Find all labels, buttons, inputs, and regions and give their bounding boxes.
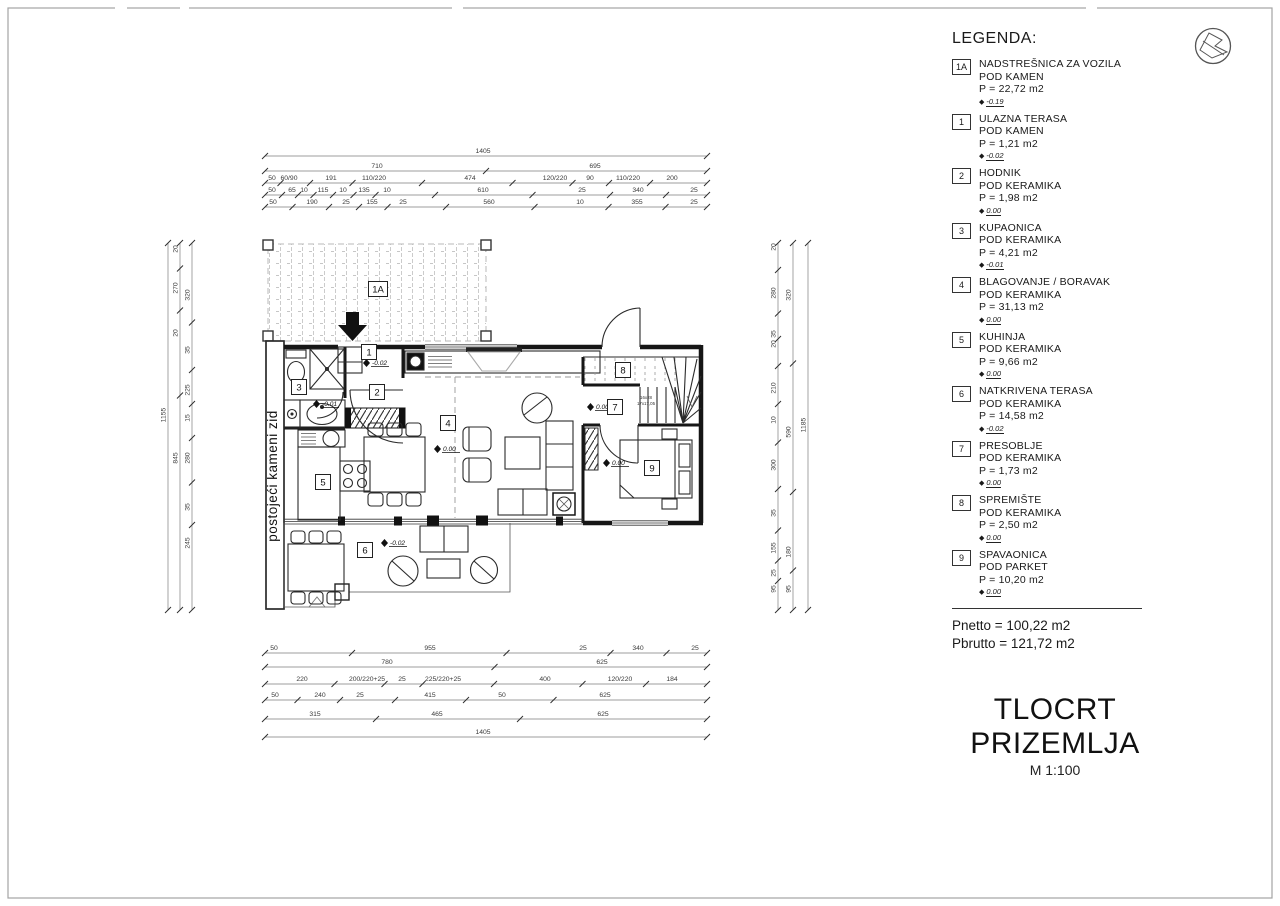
room-tag-label: 7 <box>612 403 617 414</box>
dim-label: 35 <box>185 503 192 511</box>
legend-item: 7 PRESOBLJE POD KERAMIKA P = 1,73 m2 ◆0.… <box>952 440 1190 490</box>
level-marker-icon: ◆ <box>979 535 984 542</box>
legend-item: 2 HODNIK POD KERAMIKA P = 1,98 m2 ◆0.00 <box>952 167 1190 217</box>
room-tag-label: 2 <box>374 388 379 399</box>
dim-label: 955 <box>424 645 436 652</box>
drawing-scale: M 1:100 <box>905 762 1205 778</box>
legend-item: 5 KUHINJA POD KERAMIKA P = 9,66 m2 ◆0.00 <box>952 331 1190 381</box>
dim-label: 25 <box>579 645 587 652</box>
total-netto: Pnetto = 100,22 m2 <box>952 617 1190 635</box>
dim-label: 115 <box>318 187 329 194</box>
legend-item-number: 2 <box>952 168 971 184</box>
dim-label: 120/220 <box>543 175 568 182</box>
room-tag-label: 1A <box>372 285 384 296</box>
legend-item-area: P = 1,21 m2 <box>979 138 1067 151</box>
legend-item-number: 4 <box>952 277 971 293</box>
level-diamond-icon <box>603 459 610 467</box>
dim-label: 10 <box>771 416 778 424</box>
room-tag: 9 <box>645 461 660 476</box>
dim-label: 415 <box>424 692 436 699</box>
level-marker: -0.02 <box>363 359 389 367</box>
legend-divider <box>952 608 1142 609</box>
level-marker: 0.00 <box>603 459 629 467</box>
room-tag-label: 9 <box>649 464 654 475</box>
legend-item-level: 0.00 <box>986 206 1001 216</box>
legend-item-area: P = 1,98 m2 <box>979 192 1061 205</box>
kitchen-island <box>298 430 370 520</box>
level-diamond-icon <box>363 359 370 367</box>
level-marker-icon: ◆ <box>979 480 984 487</box>
dim-label: 50 <box>271 692 279 699</box>
legend-item: 3 KUPAONICA POD KERAMIKA P = 4,21 m2 ◆-0… <box>952 222 1190 272</box>
dim-label: 90 <box>586 175 594 182</box>
dim-label: 355 <box>631 199 643 206</box>
legend-item-level: 0.00 <box>986 478 1001 488</box>
legend-item-level: -0.19 <box>986 97 1003 107</box>
dim-label: 50 <box>270 645 278 652</box>
legend-item-area: P = 10,20 m2 <box>979 574 1048 587</box>
dim-label: 25 <box>398 676 406 683</box>
dim-label: 35 <box>185 346 192 354</box>
dim-label: 95 <box>771 585 778 593</box>
dim-label: 220 <box>296 676 308 683</box>
wall-note: postojeći kameni zid <box>265 410 280 542</box>
kitchen-counter <box>405 348 600 374</box>
level-marker-icon: ◆ <box>979 371 984 378</box>
dim-label: 190 <box>306 199 318 206</box>
dim-label: 184 <box>666 676 678 683</box>
level-marker-icon: ◆ <box>979 262 984 269</box>
legend-item: 1 ULAZNA TERASA POD KAMEN P = 1,21 m2 ◆-… <box>952 113 1190 163</box>
dim-label: 110/220 <box>616 175 640 182</box>
dim-label: 135 <box>358 187 370 194</box>
legend-heading: LEGENDA: <box>952 30 1190 48</box>
legend-item-area: P = 2,50 m2 <box>979 519 1061 532</box>
room-tag: 2 <box>370 385 385 400</box>
legend-item-floor: POD KAMEN <box>979 125 1067 138</box>
dim-label: 50 <box>268 187 276 194</box>
legend-item-area: P = 22,72 m2 <box>979 83 1121 96</box>
dim-label: 35 <box>771 330 778 338</box>
level-diamond-icon <box>587 403 594 411</box>
dim-label: 625 <box>596 659 608 666</box>
legend-item-name: ULAZNA TERASA <box>979 113 1067 126</box>
dim-label: 780 <box>381 659 393 666</box>
dim-label: 20 <box>173 245 180 253</box>
legend-item: 6 NATKRIVENA TERASA POD KERAMIKA P = 14,… <box>952 385 1190 435</box>
legend-item-name: KUPAONICA <box>979 222 1061 235</box>
dim-label: 210 <box>771 382 778 394</box>
dim-label: 474 <box>464 175 476 182</box>
legend-item: 9 SPAVAONICA POD PARKET P = 10,20 m2 ◆0.… <box>952 549 1190 599</box>
room-tag: 1A <box>369 282 388 297</box>
dim-label: 340 <box>632 187 644 194</box>
dim-label: 25 <box>691 645 699 652</box>
dim-label: 1405 <box>475 148 490 155</box>
dim-label: 50 <box>498 692 506 699</box>
legend-item-level: 0.00 <box>986 533 1001 543</box>
dim-label: 25 <box>690 187 698 194</box>
dim-label: 155 <box>366 199 378 206</box>
legend-item-floor: POD KERAMIKA <box>979 343 1061 356</box>
legend-item-name: HODNIK <box>979 167 1061 180</box>
dim-label: 20 <box>771 340 778 348</box>
legend-item-number: 9 <box>952 550 971 566</box>
dim-label: 25 <box>356 692 364 699</box>
dim-label: 25 <box>399 199 407 206</box>
dim-label: 245 <box>185 537 192 549</box>
level-diamond-icon <box>381 539 388 547</box>
total-brutto: Pbrutto = 121,72 m2 <box>952 635 1190 653</box>
legend-item-number: 6 <box>952 386 971 402</box>
legend-item-number: 5 <box>952 332 971 348</box>
legend-item-floor: POD KAMEN <box>979 71 1121 84</box>
level-marker-icon: ◆ <box>979 317 984 324</box>
legend-item-name: BLAGOVANJE / BORAVAK <box>979 276 1110 289</box>
legend-item-floor: POD KERAMIKA <box>979 507 1061 520</box>
level-diamond-icon <box>313 400 320 408</box>
dim-label: 610 <box>477 187 489 194</box>
stair-note-line1: 16x28 <box>640 395 653 400</box>
dim-label: 50 <box>268 175 276 182</box>
dim-label: 25 <box>578 187 586 194</box>
dim-label: 300 <box>771 459 778 471</box>
level-marker: -0.01 <box>313 400 339 408</box>
dim-label: 270 <box>173 282 180 294</box>
dim-label: 1155 <box>161 407 168 422</box>
dim-label: 315 <box>309 711 321 718</box>
dim-label: 225/220+25 <box>425 676 461 683</box>
legend-item-area: P = 1,73 m2 <box>979 465 1061 478</box>
legend: LEGENDA: 1A NADSTREŠNICA ZA VOZILA POD K… <box>952 30 1190 653</box>
dim-label: 110/220 <box>362 175 386 182</box>
room-tag-label: 6 <box>362 546 367 557</box>
legend-item-name: NADSTREŠNICA ZA VOZILA <box>979 58 1121 71</box>
dim-label: 200/220+25 <box>349 676 385 683</box>
dim-label: 845 <box>173 452 180 464</box>
legend-item-number: 1 <box>952 114 971 130</box>
dim-label: 191 <box>325 175 337 182</box>
dining-set <box>364 423 425 506</box>
entrance-niche <box>338 347 362 373</box>
legend-item-name: NATKRIVENA TERASA <box>979 385 1093 398</box>
legend-item-floor: POD KERAMIKA <box>979 234 1061 247</box>
dim-label: 560 <box>483 199 495 206</box>
level-value: -0.02 <box>372 360 387 367</box>
dim-label: 695 <box>589 163 601 170</box>
dim-label: 120/220 <box>608 676 633 683</box>
room-tag: 6 <box>358 543 373 558</box>
legend-item-level: -0.01 <box>986 260 1003 270</box>
dim-label: 180 <box>786 546 793 558</box>
dim-label: 155 <box>771 542 778 554</box>
room-tag-label: 5 <box>320 478 325 489</box>
legend-item-name: KUHINJA <box>979 331 1061 344</box>
legend-item-floor: POD KERAMIKA <box>979 398 1093 411</box>
dim-label: 320 <box>786 289 793 301</box>
dim-label: 10 <box>339 187 347 194</box>
dim-label: 240 <box>314 692 326 699</box>
dim-label: 10 <box>576 199 584 206</box>
wardrobe <box>585 428 598 470</box>
fireplace <box>553 493 575 515</box>
level-value: 0.00 <box>443 446 456 453</box>
dim-label: 590 <box>786 426 793 438</box>
legend-item: 1A NADSTREŠNICA ZA VOZILA POD KAMEN P = … <box>952 58 1190 108</box>
level-value: 0.00 <box>612 460 625 467</box>
dimension-lines: 14057106955060/90191110/220474120/220901… <box>161 148 812 740</box>
level-marker-icon: ◆ <box>979 426 984 433</box>
room-tag-label: 1 <box>366 348 371 359</box>
dim-label: 20 <box>173 329 180 337</box>
legend-item-level: -0.02 <box>986 424 1003 434</box>
level-marker: -0.02 <box>381 539 407 547</box>
dim-label: 35 <box>771 509 778 517</box>
title-block: TLOCRT PRIZEMLJA M 1:100 <box>905 693 1205 778</box>
legend-item-area: P = 9,66 m2 <box>979 356 1061 369</box>
level-marker: 0.00 <box>434 445 460 453</box>
dim-label: 465 <box>431 711 443 718</box>
legend-item-level: 0.00 <box>986 369 1001 379</box>
dim-label: 10 <box>300 187 308 194</box>
legend-item-name: SPAVAONICA <box>979 549 1048 562</box>
dim-label: 1405 <box>475 729 490 736</box>
legend-item-name: PRESOBLJE <box>979 440 1061 453</box>
level-marker-icon: ◆ <box>979 208 984 215</box>
legend-item-area: P = 14,58 m2 <box>979 410 1093 423</box>
legend-item-number: 3 <box>952 223 971 239</box>
legend-item-number: 1A <box>952 59 971 75</box>
storage-stair-dashes <box>584 358 682 384</box>
radiator <box>345 408 405 428</box>
dim-label: 20 <box>771 243 778 251</box>
dim-label: 225 <box>185 384 192 396</box>
dim-label: 50 <box>269 199 277 206</box>
dim-label: 280 <box>771 287 778 299</box>
level-marker-icon: ◆ <box>979 99 984 106</box>
level-marker-icon: ◆ <box>979 153 984 160</box>
legend-item-area: P = 4,21 m2 <box>979 247 1061 260</box>
room-tag: 5 <box>316 475 331 490</box>
room-tag-label: 8 <box>620 366 625 377</box>
drawing-sheet: postojeći kameni zid <box>0 0 1280 906</box>
legend-item: 4 BLAGOVANJE / BORAVAK POD KERAMIKA P = … <box>952 276 1190 326</box>
dim-label: 25 <box>342 199 350 206</box>
dim-label: 400 <box>539 676 551 683</box>
dim-label: 340 <box>632 645 644 652</box>
dim-label: 25 <box>771 569 778 577</box>
legend-item-level: 0.00 <box>986 315 1001 325</box>
dim-label: 95 <box>786 585 793 593</box>
room-tag: 8 <box>616 363 631 378</box>
legend-item-name: SPREMIŠTE <box>979 494 1061 507</box>
dim-label: 65 <box>288 187 296 194</box>
dim-label: 25 <box>690 199 698 206</box>
dim-label: 15 <box>185 414 192 422</box>
room-tag: 7 <box>608 400 623 415</box>
dim-label: 60/90 <box>280 175 297 182</box>
dim-label: 10 <box>383 187 391 194</box>
legend-item-number: 8 <box>952 495 971 511</box>
legend-item-area: P = 31,13 m2 <box>979 301 1110 314</box>
room-tag: 3 <box>292 380 307 395</box>
room-tag: 1 <box>362 345 377 360</box>
room-tag: 4 <box>441 416 456 431</box>
legend-item-floor: POD KERAMIKA <box>979 180 1061 193</box>
room-tag-label: 3 <box>296 383 301 394</box>
legend-item-level: 0.00 <box>986 587 1001 597</box>
dim-label: 320 <box>185 289 192 301</box>
legend-item-level: -0.02 <box>986 151 1003 161</box>
level-diamond-icon <box>434 445 441 453</box>
stair-note-line2: 17x17,05 <box>637 401 656 406</box>
level-value: -0.02 <box>390 540 405 547</box>
dim-label: 280 <box>185 452 192 464</box>
legend-item: 8 SPREMIŠTE POD KERAMIKA P = 2,50 m2 ◆0.… <box>952 494 1190 544</box>
dim-label: 1185 <box>801 417 808 432</box>
room-tag-label: 4 <box>445 419 450 430</box>
legend-item-floor: POD KERAMIKA <box>979 289 1110 302</box>
level-value: -0.01 <box>322 401 337 408</box>
dim-label: 200 <box>666 175 678 182</box>
dim-label: 625 <box>599 692 611 699</box>
dim-label: 625 <box>597 711 609 718</box>
level-marker-icon: ◆ <box>979 589 984 596</box>
drawing-title: TLOCRT PRIZEMLJA <box>905 693 1205 761</box>
legend-item-floor: POD PARKET <box>979 561 1048 574</box>
legend-item-number: 7 <box>952 441 971 457</box>
dim-label: 710 <box>371 163 383 170</box>
architect-logo-icon <box>1196 29 1231 64</box>
legend-item-floor: POD KERAMIKA <box>979 452 1061 465</box>
